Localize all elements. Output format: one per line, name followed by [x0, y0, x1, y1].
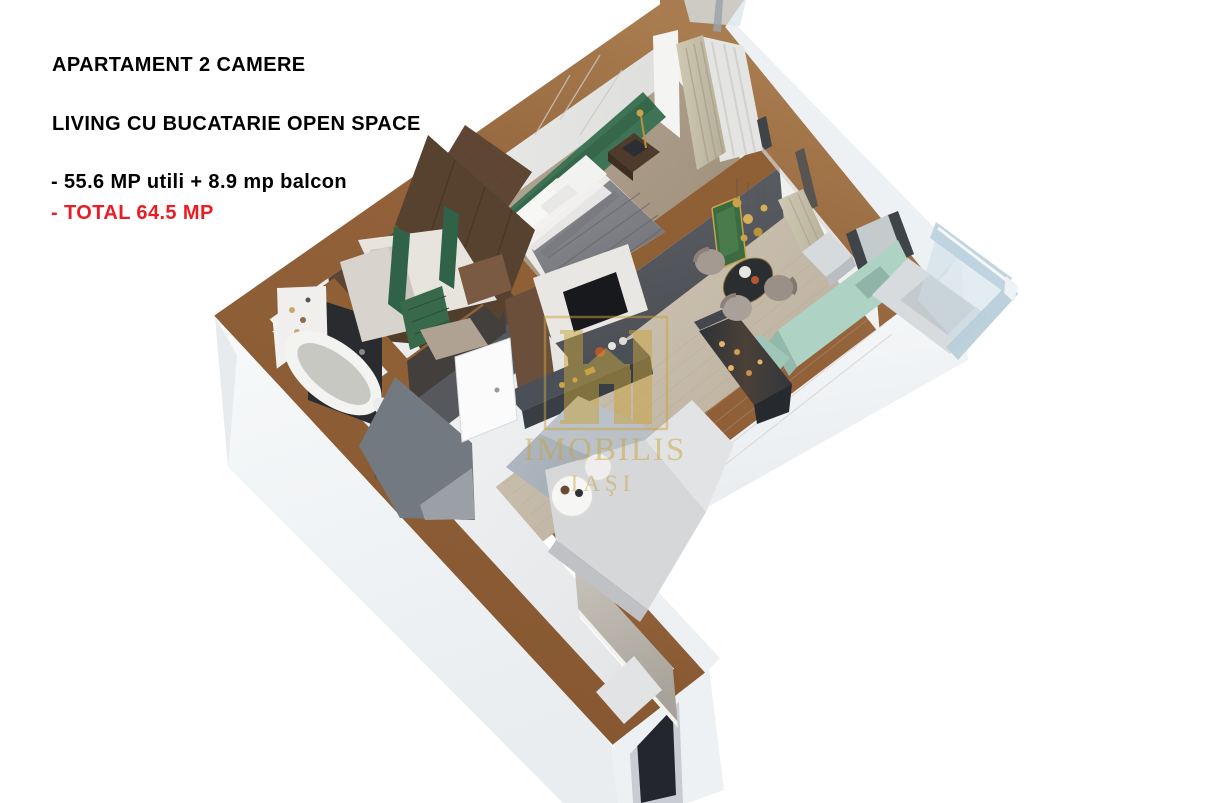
svg-text:IMOBILIS: IMOBILIS [524, 432, 687, 468]
svg-text:IAŞI: IAŞI [571, 471, 636, 496]
